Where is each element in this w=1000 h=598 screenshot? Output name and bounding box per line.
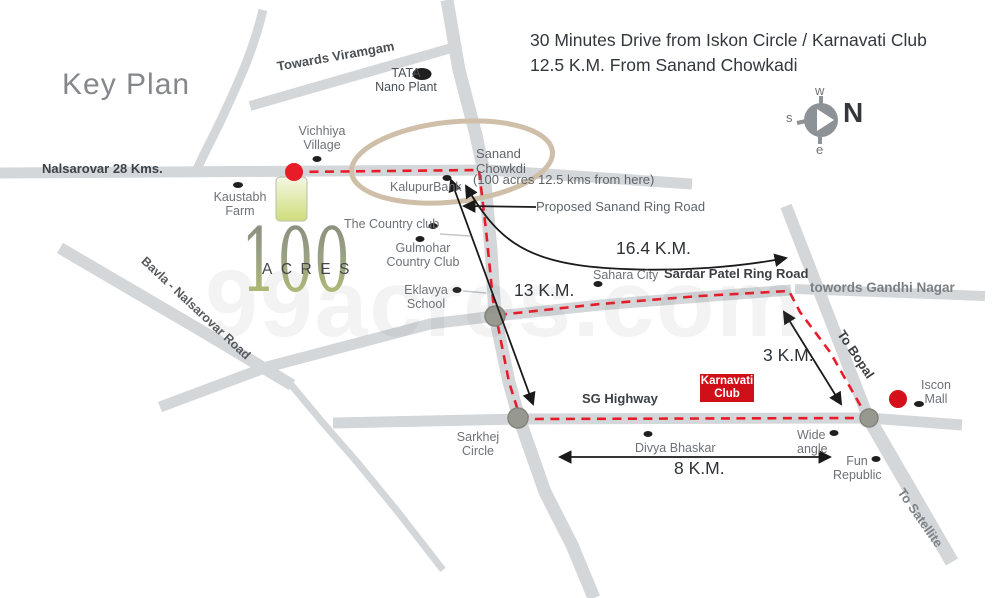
compass-north-label: N xyxy=(843,97,863,129)
place-wide-angle-line1: Wide xyxy=(797,428,828,442)
place-gulmohar-line2: Country Club xyxy=(385,255,461,269)
place-fun-republic-line2: Republic xyxy=(833,468,881,482)
compass-east-label: e xyxy=(816,142,823,157)
place-eklavya-line1: Eklavya xyxy=(398,283,454,297)
place-kaustabh-line1: Kaustabh xyxy=(205,190,275,204)
arrow-proposed-ring-road xyxy=(464,206,536,207)
road-top-curve xyxy=(196,10,263,172)
key-plan-map: 99acres.com Key Plan 30 Minutes Drive fr… xyxy=(0,0,1000,598)
place-iscon-line1: Iscon xyxy=(913,378,959,392)
place-tata: TATA Nano Plant xyxy=(366,66,446,94)
place-sarkhej-line2: Circle xyxy=(455,444,501,458)
site-location-dot xyxy=(285,163,303,181)
place-sanand-note: (100 acres 12.5 kms from here) xyxy=(473,173,654,187)
place-karnavati-line1: Karnavati xyxy=(700,375,754,388)
divya-dot xyxy=(644,431,653,437)
header-note: 30 Minutes Drive from Iskon Circle / Kar… xyxy=(530,28,927,78)
place-fun-republic: Fun Republic xyxy=(833,454,881,482)
road-label-gandhi-nagar: towords Gandhi Nagar xyxy=(810,281,955,295)
place-kalupur: KalupurBank xyxy=(390,180,462,194)
place-sanand-line1: Sanand xyxy=(476,146,526,161)
wide-angle-dot xyxy=(830,430,839,436)
place-karnavati-badge: Karnavati Club xyxy=(700,374,754,402)
place-eklavya: Eklavya School xyxy=(398,283,454,311)
distance-8km: 8 K.M. xyxy=(674,458,725,479)
place-fun-republic-line1: Fun xyxy=(833,454,881,468)
kaustabh-dot xyxy=(233,182,243,188)
compass-south-label: s xyxy=(786,110,793,125)
road-label-sg-highway: SG Highway xyxy=(582,392,658,406)
junction-sarkhej-circle xyxy=(508,408,528,428)
road-label-nalsarovar: Nalsarovar 28 Kms. xyxy=(42,162,163,176)
compass-west-label: w xyxy=(815,83,824,98)
road-bavla-lower xyxy=(288,381,443,570)
road-label-sardar-patel: Sardar Patel Ring Road xyxy=(664,267,808,281)
place-vichhiya: Vichhiya Village xyxy=(282,124,362,152)
place-karnavati-line2: Club xyxy=(700,388,754,401)
compass-rose xyxy=(797,96,838,144)
distance-13km: 13 K.M. xyxy=(514,280,574,301)
page-title: Key Plan xyxy=(62,68,190,102)
place-sarkhej: Sarkhej Circle xyxy=(455,430,501,458)
header-line1: 30 Minutes Drive from Iskon Circle / Kar… xyxy=(530,28,927,53)
place-sarkhej-line1: Sarkhej xyxy=(455,430,501,444)
place-iscon-line2: Mall xyxy=(913,392,959,406)
place-wide-angle-line2: angle xyxy=(797,442,828,456)
junction-iscon xyxy=(860,409,878,427)
place-sahara: Sahara City xyxy=(593,268,658,282)
place-tata-line1: TATA xyxy=(366,66,446,80)
connector-country-club xyxy=(440,234,470,236)
iscon-location-dot xyxy=(889,390,907,408)
place-divya: Divya Bhaskar xyxy=(635,441,716,455)
road-label-proposed-ring: Proposed Sanand Ring Road xyxy=(536,200,705,214)
distance-3km: 3 K.M. xyxy=(763,345,814,366)
place-gulmohar-line1: Gulmohar xyxy=(385,241,461,255)
place-gulmohar: Gulmohar Country Club xyxy=(385,241,461,269)
site-acres-label: ACRES xyxy=(262,261,358,279)
place-iscon: Iscon Mall xyxy=(913,378,959,406)
place-country-club: The Country club xyxy=(344,217,439,231)
place-vichhiya-line2: Village xyxy=(282,138,362,152)
place-wide-angle: Wide angle xyxy=(797,428,828,456)
distance-16km: 16.4 K.M. xyxy=(616,238,691,259)
vichhiya-dot xyxy=(313,156,322,162)
place-tata-line2: Nano Plant xyxy=(366,80,446,94)
place-vichhiya-line1: Vichhiya xyxy=(282,124,362,138)
header-line2: 12.5 K.M. From Sanand Chowkadi xyxy=(530,53,927,78)
place-eklavya-line2: School xyxy=(398,297,454,311)
